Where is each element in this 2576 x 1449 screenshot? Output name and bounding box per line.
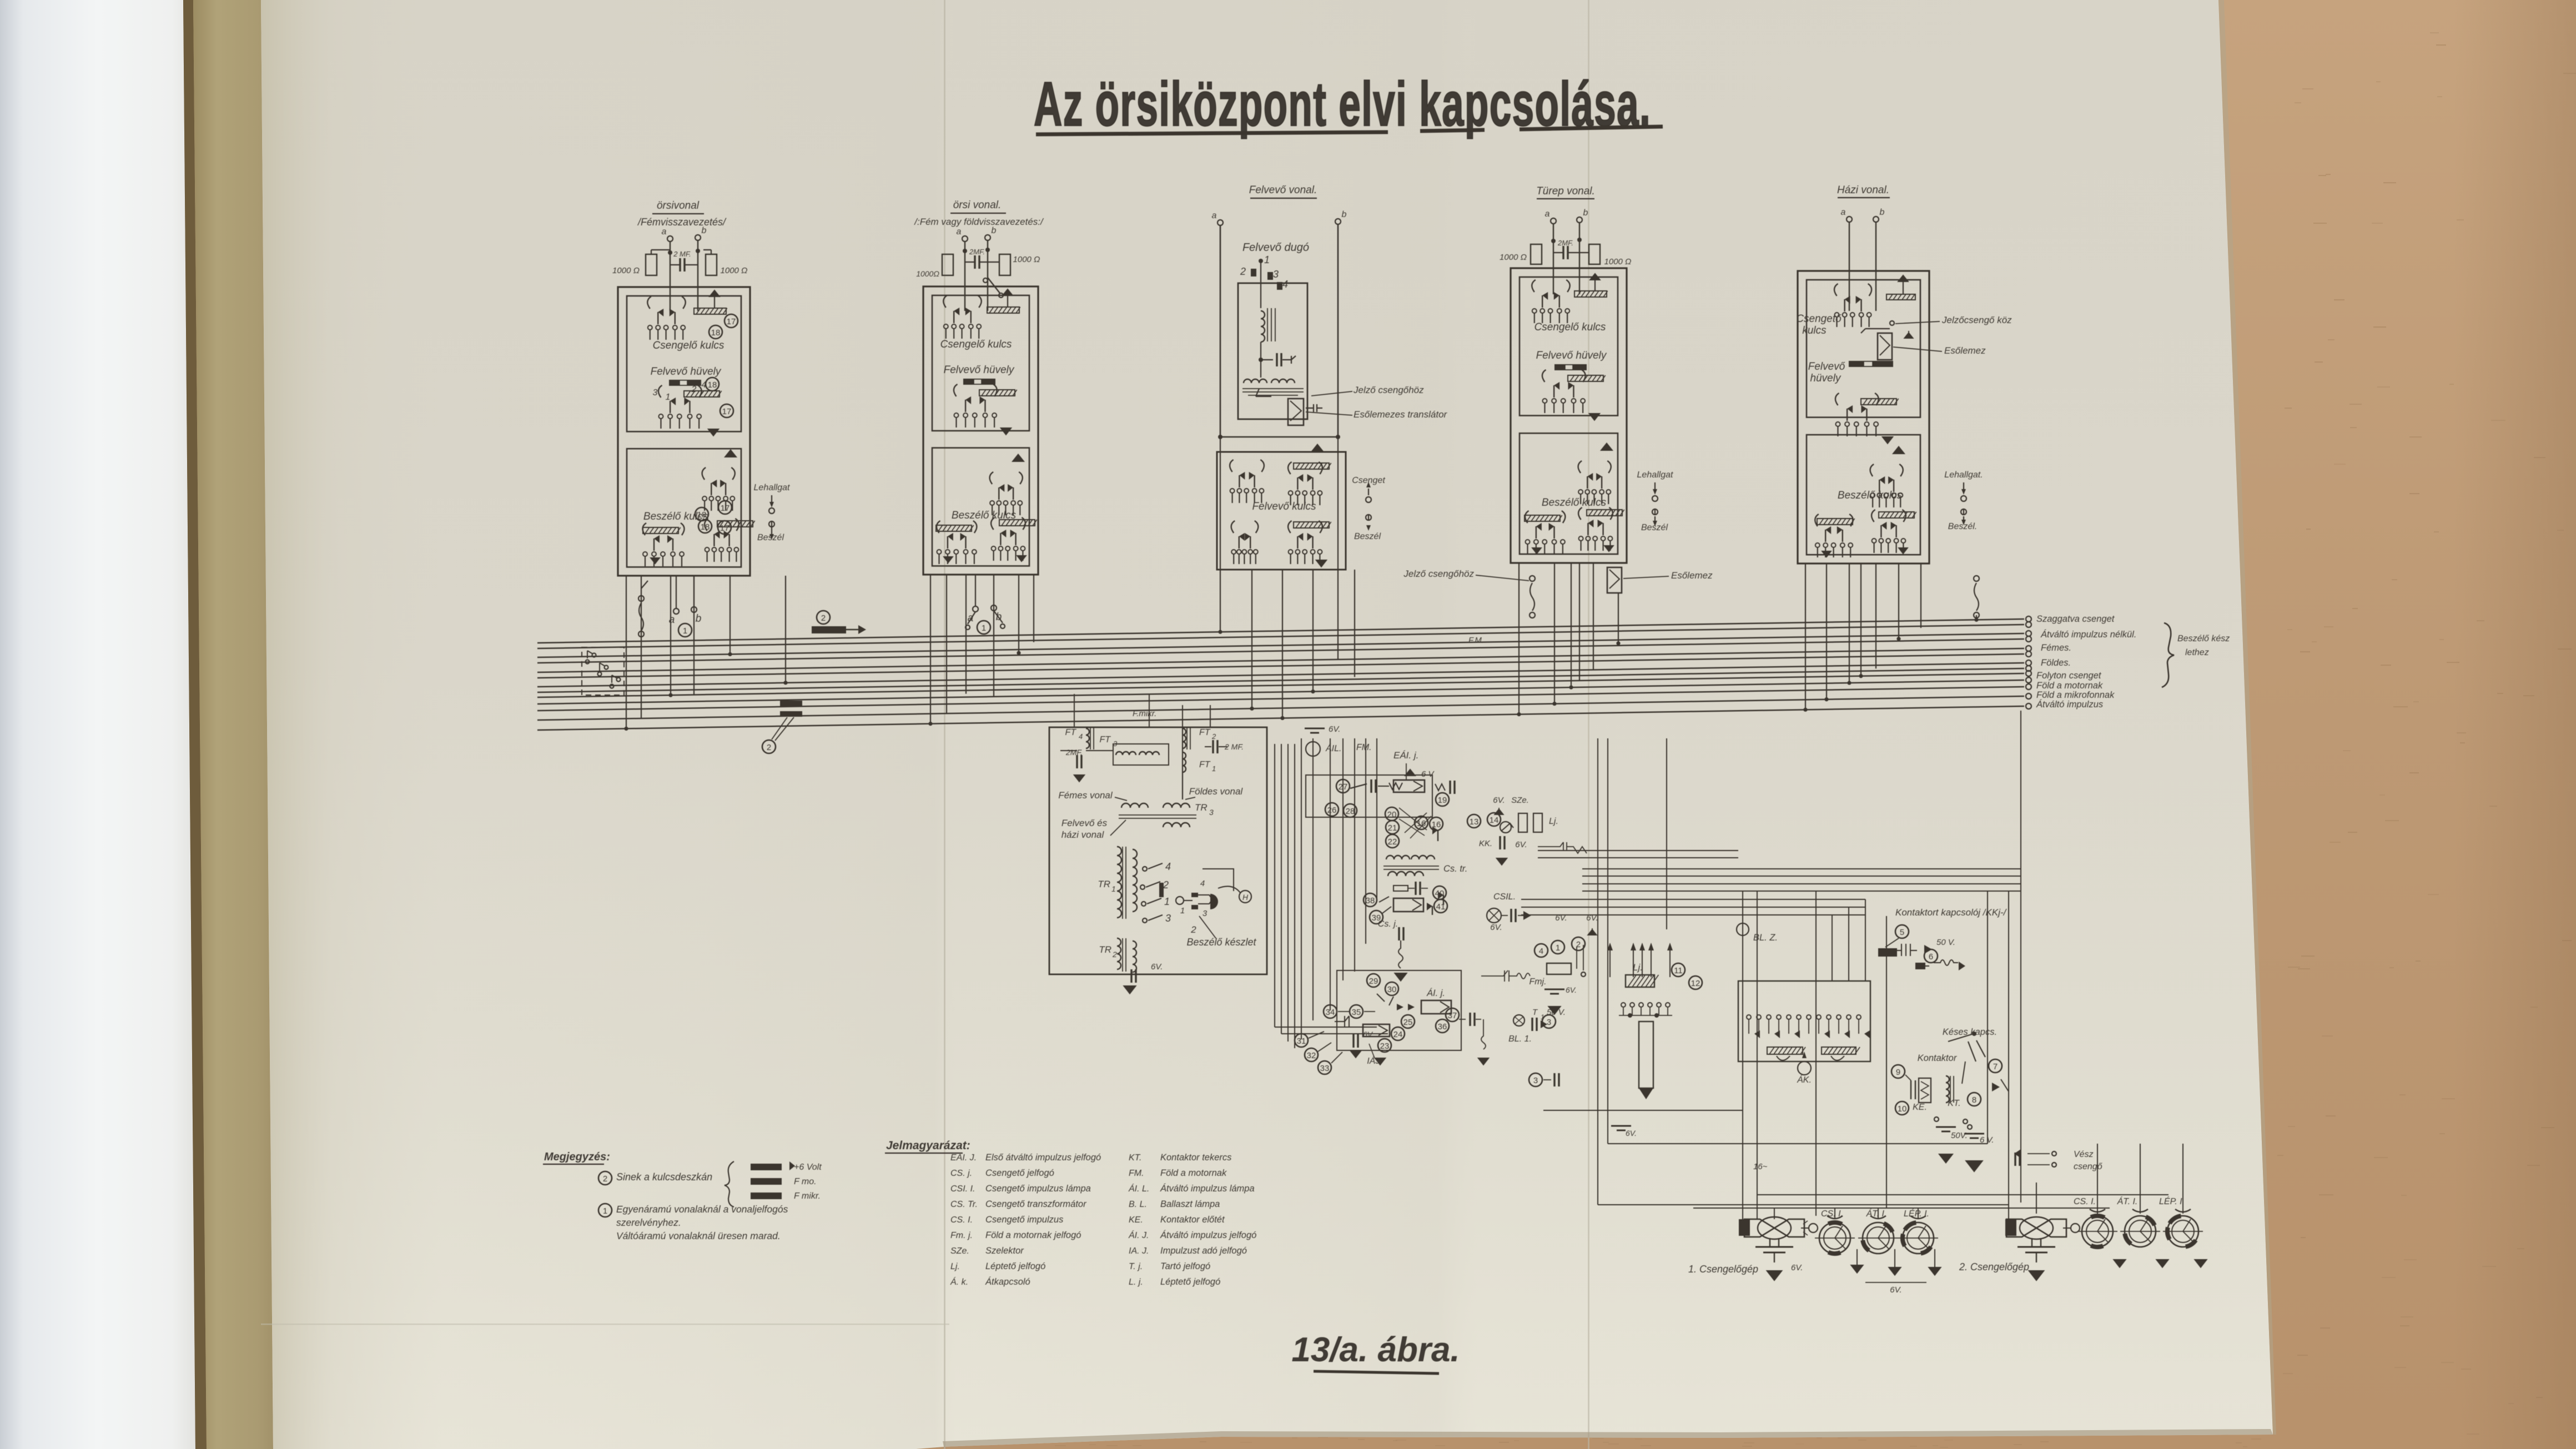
svg-text:Folyton csenget: Folyton csenget xyxy=(2036,671,2102,681)
svg-text:Kontaktor: Kontaktor xyxy=(1918,1053,1958,1063)
svg-text:16~: 16~ xyxy=(1753,1162,1768,1171)
svg-text:Beszélő kulcs: Beszélő kulcs xyxy=(1542,497,1607,509)
svg-text:csengő: csengő xyxy=(2074,1162,2103,1171)
svg-text:18: 18 xyxy=(697,510,707,520)
svg-text:Csengelő kulcs: Csengelő kulcs xyxy=(1534,321,1606,333)
svg-text:Csengelő kulcs: Csengelő kulcs xyxy=(653,340,724,351)
svg-text:Beszél: Beszél xyxy=(1354,532,1381,541)
svg-text:8: 8 xyxy=(1972,1095,1976,1105)
svg-text:2MF.: 2MF. xyxy=(1557,239,1573,247)
svg-text:H: H xyxy=(1242,893,1249,902)
svg-text:1: 1 xyxy=(1212,764,1216,773)
svg-text:a: a xyxy=(662,227,667,237)
svg-text:b: b xyxy=(696,613,702,625)
svg-text:a: a xyxy=(957,227,962,237)
svg-text:2: 2 xyxy=(603,1174,607,1184)
svg-text:házi vonal: házi vonal xyxy=(1061,829,1105,840)
svg-text:CSIL.: CSIL. xyxy=(1493,892,1516,902)
svg-text:a: a xyxy=(1212,211,1217,220)
svg-text:LÉP. I.: LÉP. I. xyxy=(1904,1208,1929,1219)
svg-text:Lj.: Lj. xyxy=(1549,817,1558,826)
svg-text:Kontaktort kapcsolój /KKj-/: Kontaktort kapcsolój /KKj-/ xyxy=(1895,907,2008,918)
svg-text:1. Csengelőgép: 1. Csengelőgép xyxy=(1688,1264,1758,1275)
svg-text:Lehallgat: Lehallgat xyxy=(1637,470,1674,480)
svg-text:33: 33 xyxy=(1320,1064,1330,1073)
svg-text:Beszél: Beszél xyxy=(757,533,784,542)
svg-text:18: 18 xyxy=(708,380,717,390)
svg-text:2: 2 xyxy=(1112,950,1117,959)
svg-text:2. Csengelőgép: 2. Csengelőgép xyxy=(1959,1261,2029,1272)
svg-text:6V.: 6V. xyxy=(1791,1263,1803,1272)
svg-text:2MF.: 2MF. xyxy=(969,248,985,256)
svg-text:Csengető jelfogó: Csengető jelfogó xyxy=(985,1168,1054,1178)
svg-text:Késes kapcs.: Késes kapcs. xyxy=(1943,1027,1997,1037)
svg-text:ÁK.: ÁK. xyxy=(1797,1074,1812,1085)
svg-text:SZe.: SZe. xyxy=(1511,796,1529,805)
svg-text:1000 Ω: 1000 Ω xyxy=(1500,253,1527,262)
svg-text:a: a xyxy=(1545,209,1550,219)
svg-text:KE.: KE. xyxy=(1913,1103,1927,1112)
svg-text:IA. J.: IA. J. xyxy=(1129,1246,1149,1256)
svg-text:20: 20 xyxy=(1387,810,1397,819)
svg-text:1: 1 xyxy=(603,1206,607,1216)
svg-text:2: 2 xyxy=(1240,266,1246,277)
svg-text:3: 3 xyxy=(1209,808,1214,817)
svg-text:1: 1 xyxy=(1164,896,1170,907)
svg-text:6V.: 6V. xyxy=(1626,1129,1637,1138)
svg-text:25: 25 xyxy=(1403,1018,1413,1027)
svg-text:21: 21 xyxy=(1388,823,1397,833)
svg-text:Tartó jelfogó: Tartó jelfogó xyxy=(1160,1261,1210,1271)
svg-text:a: a xyxy=(669,614,675,626)
svg-text:KE.: KE. xyxy=(1129,1215,1143,1225)
svg-text:Felvevő: Felvevő xyxy=(1808,361,1845,373)
svg-text:6V.: 6V. xyxy=(1363,1030,1374,1039)
svg-text:1: 1 xyxy=(1556,943,1560,953)
svg-text:KT.: KT. xyxy=(1948,1099,1960,1108)
svg-text:Beszélő kész: Beszélő kész xyxy=(2177,634,2230,643)
svg-text:SZe.: SZe. xyxy=(950,1246,969,1256)
svg-text:1000Ω: 1000Ω xyxy=(916,269,939,278)
svg-text:Ballaszt lámpa: Ballaszt lámpa xyxy=(1160,1199,1220,1209)
svg-text:Jelző csengőhöz: Jelző csengőhöz xyxy=(1353,385,1424,395)
svg-text:29: 29 xyxy=(1369,977,1378,986)
svg-text:3: 3 xyxy=(1547,1018,1551,1027)
svg-text:KT.: KT. xyxy=(1129,1153,1141,1163)
svg-text:17: 17 xyxy=(722,407,732,416)
svg-text:22: 22 xyxy=(1388,837,1397,847)
svg-text:FT: FT xyxy=(1199,728,1211,737)
svg-text:ÁI. L.: ÁI. L. xyxy=(1128,1183,1149,1194)
svg-text:/:Fém vagy földvisszavezetés:/: /:Fém vagy földvisszavezetés:/ xyxy=(914,217,1044,227)
svg-text:Föld a motornak: Föld a motornak xyxy=(2036,681,2103,691)
svg-text:b: b xyxy=(702,226,707,235)
svg-text:Csengelő kulcs: Csengelő kulcs xyxy=(940,339,1012,350)
svg-text:lethez: lethez xyxy=(2185,648,2209,657)
svg-text:b: b xyxy=(1583,208,1588,218)
svg-text:Cs. tr.: Cs. tr. xyxy=(1443,864,1467,874)
svg-text:CSI. I.: CSI. I. xyxy=(950,1184,975,1194)
svg-text:30: 30 xyxy=(1387,985,1397,994)
svg-text:4: 4 xyxy=(1539,947,1543,956)
svg-text:ÁI. j.: ÁI. j. xyxy=(1426,988,1445,998)
svg-text:1: 1 xyxy=(1264,254,1270,265)
svg-text:1000 Ω: 1000 Ω xyxy=(612,266,640,275)
svg-text:TR: TR xyxy=(1098,879,1110,889)
svg-text:Cs. j.: Cs. j. xyxy=(1378,919,1398,929)
svg-text:13: 13 xyxy=(1470,817,1479,827)
svg-text:F mikr.: F mikr. xyxy=(794,1191,821,1201)
svg-text:kulcs: kulcs xyxy=(1802,325,1827,336)
svg-text:Felvevő és: Felvevő és xyxy=(1061,818,1108,828)
svg-text:1: 1 xyxy=(683,626,687,636)
svg-text:Á. k.: Á. k. xyxy=(950,1276,968,1287)
svg-text:1: 1 xyxy=(982,623,986,633)
svg-text:Kontaktor tekercs: Kontaktor tekercs xyxy=(1160,1153,1231,1163)
svg-text:3: 3 xyxy=(653,388,658,398)
svg-text:6V.: 6V. xyxy=(1555,913,1567,923)
svg-text:T. j.: T. j. xyxy=(1129,1262,1143,1271)
svg-text:b: b xyxy=(1342,210,1347,219)
svg-text:Első átváltó impulzus jelfogó: Első átváltó impulzus jelfogó xyxy=(985,1153,1101,1163)
svg-text:CS. I.: CS. I. xyxy=(950,1215,973,1225)
svg-text:F.M.: F.M. xyxy=(1468,636,1484,645)
svg-text:Felvevő vonal.: Felvevő vonal. xyxy=(1249,184,1317,196)
svg-text:37: 37 xyxy=(1448,1011,1457,1020)
svg-text:6V.: 6V. xyxy=(1493,796,1505,805)
svg-text:4: 4 xyxy=(1200,879,1205,888)
svg-text:Szelektor: Szelektor xyxy=(985,1246,1024,1256)
svg-text:6 V.: 6 V. xyxy=(1980,1135,1994,1145)
svg-text:Átváltó impulzus lámpa: Átváltó impulzus lámpa xyxy=(1160,1183,1255,1194)
svg-text:EÁI. J.: EÁI. J. xyxy=(950,1152,977,1163)
svg-text:3: 3 xyxy=(1165,913,1171,924)
svg-text:FT: FT xyxy=(1065,728,1076,737)
svg-text:23: 23 xyxy=(1380,1042,1390,1051)
svg-text:ÁT. I.: ÁT. I. xyxy=(2117,1196,2138,1206)
svg-text:26: 26 xyxy=(1327,806,1337,815)
svg-text:1000 Ω: 1000 Ω xyxy=(721,266,748,275)
svg-text:31: 31 xyxy=(1297,1037,1306,1046)
svg-text:Föld a motornak: Föld a motornak xyxy=(1160,1168,1227,1178)
svg-text:Esőlemez: Esőlemez xyxy=(1944,345,1986,356)
svg-text:CS. j.: CS. j. xyxy=(950,1169,972,1178)
svg-text:Föld a mikrofonnak: Föld a mikrofonnak xyxy=(2036,690,2115,700)
svg-text:Fémes.: Fémes. xyxy=(2041,643,2071,653)
svg-text:Lehallgat.: Lehallgat. xyxy=(1944,470,1983,480)
svg-text:6V.: 6V. xyxy=(1586,913,1598,923)
svg-text:CS. Tr.: CS. Tr. xyxy=(950,1200,978,1209)
svg-text:6V.: 6V. xyxy=(1490,923,1502,932)
svg-text:10: 10 xyxy=(1898,1104,1907,1114)
svg-text:34: 34 xyxy=(1326,1008,1335,1017)
svg-text:Földes.: Földes. xyxy=(2041,658,2071,668)
svg-text:24: 24 xyxy=(1393,1030,1403,1039)
svg-text:41: 41 xyxy=(1436,902,1446,912)
svg-text:/Fémvisszavezetés/: /Fémvisszavezetés/ xyxy=(637,217,727,228)
svg-text:Léptető jelfogó: Léptető jelfogó xyxy=(1160,1277,1220,1287)
svg-text:örsivonal: örsivonal xyxy=(657,200,700,212)
svg-text:2: 2 xyxy=(691,385,697,394)
svg-text:4: 4 xyxy=(1282,279,1288,290)
svg-text:Impulzust adó jelfogó: Impulzust adó jelfogó xyxy=(1160,1246,1247,1256)
svg-text:5: 5 xyxy=(1900,928,1904,937)
svg-text:36: 36 xyxy=(1438,1022,1447,1032)
svg-text:32: 32 xyxy=(1307,1051,1316,1060)
svg-text:FT: FT xyxy=(1199,760,1211,769)
svg-text:Föld a motornak jelfogó: Föld a motornak jelfogó xyxy=(985,1230,1081,1240)
svg-text:Beszél: Beszél xyxy=(1641,523,1668,532)
svg-text:1: 1 xyxy=(1111,884,1116,893)
svg-text:3: 3 xyxy=(1533,1076,1538,1085)
svg-text:Földes vonal: Földes vonal xyxy=(1189,786,1244,797)
svg-text:Türep vonal.: Türep vonal. xyxy=(1536,185,1595,197)
svg-text:Léptető jelfogó: Léptető jelfogó xyxy=(985,1261,1045,1271)
svg-text:2: 2 xyxy=(767,743,771,752)
svg-text:Átváltó impulzus nélkül.: Átváltó impulzus nélkül. xyxy=(2040,629,2136,640)
svg-text:Felvevő hüvely: Felvevő hüvely xyxy=(944,364,1015,376)
svg-text:17: 17 xyxy=(721,504,730,513)
svg-text:a: a xyxy=(1841,208,1846,217)
svg-text:1: 1 xyxy=(666,393,671,402)
svg-text:Vész: Vész xyxy=(2074,1150,2094,1159)
svg-text:Fmj.: Fmj. xyxy=(1529,977,1546,987)
svg-text:L. j.: L. j. xyxy=(1129,1277,1143,1287)
svg-text:Házi vonal.: Házi vonal. xyxy=(1837,184,1889,196)
svg-text:11: 11 xyxy=(1674,966,1683,975)
svg-text:Megjegyzés:: Megjegyzés: xyxy=(544,1151,610,1163)
svg-text:Felvevő hüvely: Felvevő hüvely xyxy=(1536,350,1607,361)
svg-text:örsi vonal.: örsi vonal. xyxy=(953,199,1002,211)
svg-text:F.mikr.: F.mikr. xyxy=(1133,709,1156,718)
svg-text:Kontaktor előtét: Kontaktor előtét xyxy=(1160,1215,1225,1225)
svg-text:12: 12 xyxy=(1691,979,1700,988)
svg-text:19: 19 xyxy=(1438,796,1447,805)
svg-text:Lehallgat: Lehallgat xyxy=(754,483,791,492)
svg-text:szerelvényhez.: szerelvényhez. xyxy=(616,1217,681,1228)
svg-text:Váltóáramú vonalaknál üresen m: Váltóáramú vonalaknál üresen marad. xyxy=(616,1230,781,1241)
svg-text:17: 17 xyxy=(720,524,729,533)
svg-text:2: 2 xyxy=(1190,924,1196,935)
svg-text:Lj.: Lj. xyxy=(1633,962,1643,973)
svg-text:+6 Volt: +6 Volt xyxy=(794,1163,822,1172)
svg-text:b: b xyxy=(992,226,997,235)
svg-text:Csengető transzformátor: Csengető transzformátor xyxy=(985,1199,1087,1209)
svg-text:Esőlemezes translátor: Esőlemezes translátor xyxy=(1354,409,1448,420)
svg-text:18: 18 xyxy=(701,522,710,532)
svg-text:Átváltó impulzus: Átváltó impulzus xyxy=(2036,699,2103,710)
svg-text:Átváltó impulzus jelfogó: Átváltó impulzus jelfogó xyxy=(1160,1230,1256,1240)
svg-text:28: 28 xyxy=(1346,807,1355,816)
svg-text:13/a. ábra.: 13/a. ábra. xyxy=(1291,1331,1460,1369)
svg-text:2 MF.: 2 MF. xyxy=(673,250,691,258)
svg-text:27: 27 xyxy=(1339,782,1348,792)
svg-text:50 V.: 50 V. xyxy=(1936,938,1955,947)
svg-text:35: 35 xyxy=(1352,1008,1361,1017)
svg-text:2MF.: 2MF. xyxy=(1065,748,1083,757)
svg-text:4: 4 xyxy=(1165,861,1171,872)
svg-text:Jelzőcsengő köz: Jelzőcsengő köz xyxy=(1941,315,2012,325)
svg-text:14: 14 xyxy=(1490,816,1499,825)
svg-text:Felvevő hüvely: Felvevő hüvely xyxy=(651,366,722,378)
svg-text:FM.: FM. xyxy=(1356,743,1372,752)
svg-text:Beszélő készlet: Beszélő készlet xyxy=(1186,937,1256,948)
svg-text:Átkapcsoló: Átkapcsoló xyxy=(985,1276,1030,1287)
svg-text:EÁI. j.: EÁI. j. xyxy=(1393,750,1418,761)
svg-text:TR: TR xyxy=(1099,944,1111,955)
svg-text:6V.: 6V. xyxy=(1151,962,1163,972)
svg-text:FM.: FM. xyxy=(1129,1169,1144,1178)
svg-text:hüvely: hüvely xyxy=(1810,373,1842,384)
svg-text:6V.: 6V. xyxy=(1566,985,1577,994)
svg-text:Esőlemez: Esőlemez xyxy=(1671,570,1713,581)
svg-text:LÉP. I.: LÉP. I. xyxy=(2159,1196,2185,1206)
svg-text:6V.: 6V. xyxy=(1329,724,1340,734)
svg-text:Sinek a kulcsdeszkán: Sinek a kulcsdeszkán xyxy=(616,1171,712,1183)
svg-text:BL. Z.: BL. Z. xyxy=(1753,933,1778,943)
svg-text:BL. 1.: BL. 1. xyxy=(1508,1034,1532,1044)
svg-text:2: 2 xyxy=(1211,732,1216,741)
svg-text:6: 6 xyxy=(1929,952,1933,962)
svg-text:6V.: 6V. xyxy=(1515,840,1527,849)
svg-text:18: 18 xyxy=(711,328,721,338)
svg-text:Jelző csengőhöz: Jelző csengőhöz xyxy=(1403,568,1474,579)
svg-text:40: 40 xyxy=(1435,889,1445,898)
svg-text:2: 2 xyxy=(821,613,826,623)
svg-text:CS. I.: CS. I. xyxy=(2074,1197,2096,1206)
svg-text:Csengető impulzus: Csengető impulzus xyxy=(985,1215,1063,1225)
svg-text:1000 Ω: 1000 Ω xyxy=(1604,257,1632,266)
svg-text:Beszél.: Beszél. xyxy=(1948,522,1977,531)
svg-text:6 V: 6 V xyxy=(1421,769,1435,779)
svg-text:38: 38 xyxy=(1366,896,1375,905)
svg-text:F mo.: F mo. xyxy=(794,1177,817,1186)
svg-text:17: 17 xyxy=(727,317,736,326)
svg-text:Egyenáramú vonalaknál a vonalj: Egyenáramú vonalaknál a vonaljelfogós xyxy=(616,1204,788,1215)
svg-text:B. L.: B. L. xyxy=(1129,1200,1147,1209)
svg-text:50V.: 50V. xyxy=(1951,1131,1968,1140)
svg-text:Jelmagyarázat:: Jelmagyarázat: xyxy=(886,1139,970,1152)
svg-text:Szaggatva csenget: Szaggatva csenget xyxy=(2036,614,2115,624)
svg-text:Felvevő dugó: Felvevő dugó xyxy=(1242,241,1309,254)
svg-text:Csengető impulzus lámpa: Csengető impulzus lámpa xyxy=(985,1184,1091,1194)
svg-text:KK.: KK. xyxy=(1479,839,1492,848)
svg-text:Fm. j.: Fm. j. xyxy=(950,1231,973,1240)
svg-text:Fémes vonal: Fémes vonal xyxy=(1058,790,1113,801)
svg-text:TR: TR xyxy=(1195,802,1207,813)
svg-text:Lj.: Lj. xyxy=(950,1262,960,1271)
svg-text:FT: FT xyxy=(1099,735,1111,744)
svg-text:6V.: 6V. xyxy=(1890,1285,1901,1295)
svg-text:3: 3 xyxy=(1273,269,1279,280)
svg-text:ÁIL.: ÁIL. xyxy=(1325,743,1341,753)
svg-text:b: b xyxy=(1880,208,1885,217)
svg-text:7: 7 xyxy=(1993,1062,1998,1071)
svg-text:1: 1 xyxy=(1180,906,1185,915)
svg-text:4: 4 xyxy=(1079,732,1083,741)
svg-text:3: 3 xyxy=(1203,909,1207,918)
svg-text:ÁI. J.: ÁI. J. xyxy=(1128,1230,1149,1240)
svg-text:9: 9 xyxy=(1896,1068,1900,1077)
svg-text:1000 Ω: 1000 Ω xyxy=(1013,255,1040,264)
